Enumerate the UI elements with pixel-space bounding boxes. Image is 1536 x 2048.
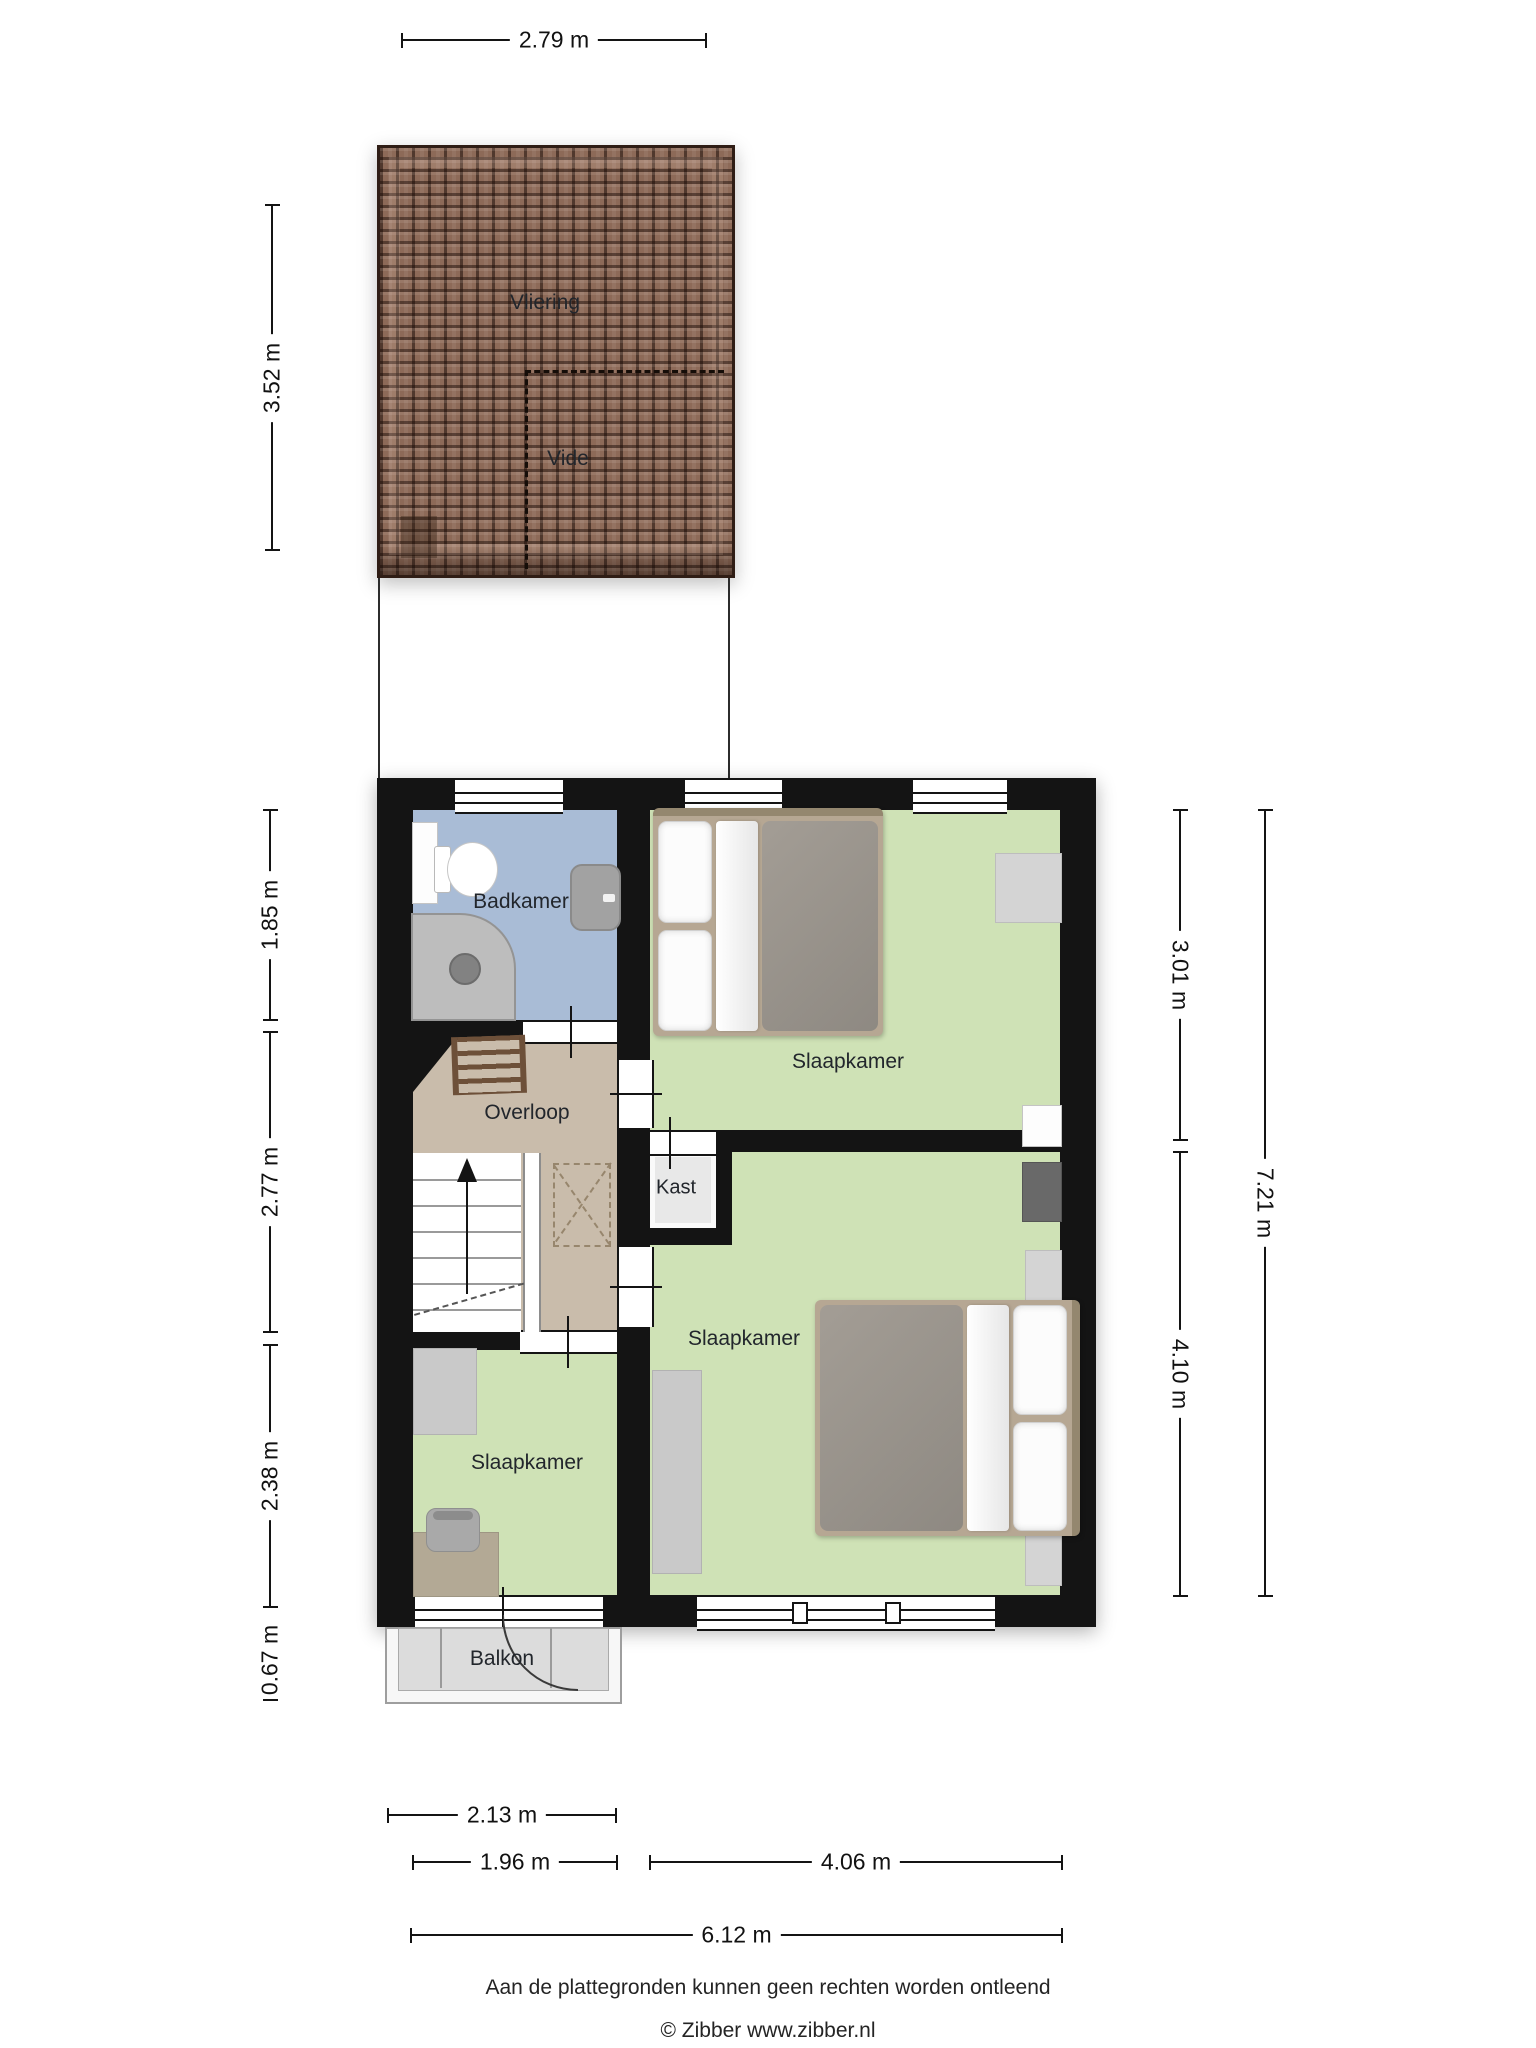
- door-tick: [610, 1093, 662, 1095]
- room-label-balkon: Balkon: [470, 1647, 534, 1671]
- door-tick: [567, 1316, 569, 1368]
- dim-label: 2.13 m: [458, 1802, 546, 1829]
- dim-balkon-width: 2.13 m: [388, 1814, 616, 1816]
- dim-rechts-width: 4.06 m: [650, 1861, 1062, 1863]
- attic-projection-line-right: [728, 578, 730, 778]
- dim-attic-width: 2.79 m: [402, 39, 706, 41]
- bed-top-bedroom: [653, 808, 883, 1036]
- dim-label: 1.96 m: [471, 1849, 559, 1876]
- kast-door-opening: [650, 1130, 716, 1156]
- pillow-icon: [1013, 1422, 1067, 1532]
- sink-icon: [570, 864, 621, 931]
- bed-sheet-fold: [716, 821, 758, 1031]
- stairs-direction-line: [466, 1182, 468, 1294]
- pillow-icon: [1013, 1305, 1067, 1415]
- dim-label: 2.79 m: [510, 27, 598, 54]
- bed-pillows: [1013, 1305, 1067, 1531]
- dim-label: 7.21 m: [1252, 1159, 1279, 1247]
- toilet-bowl-icon: [447, 842, 498, 897]
- pillow-icon: [658, 821, 712, 923]
- stair-railing: [523, 1153, 541, 1332]
- window-mullion: [792, 1602, 808, 1624]
- badkamer-door-opening: [523, 1020, 617, 1044]
- room-label-slaapkamer-top: Slaapkamer: [792, 1050, 904, 1074]
- room-label-kast: Kast: [656, 1177, 696, 1200]
- balcony-divider: [440, 1628, 442, 1688]
- dim-slaapkamer-top-height: 3.01 m: [1179, 810, 1181, 1140]
- dim-label: 4.06 m: [812, 1849, 900, 1876]
- room-label-badkamer: Badkamer: [473, 890, 569, 914]
- dim-label: 3.01 m: [1167, 931, 1194, 1019]
- dim-label: 2.77 m: [257, 1138, 284, 1226]
- dim-slaapkamer-klein-height: 2.38 m: [269, 1345, 271, 1607]
- bed-sheet-fold: [967, 1305, 1009, 1531]
- floorplan-page: Vliering Vide: [0, 0, 1536, 2048]
- bed-duvet: [820, 1305, 963, 1531]
- slaapkamer-groot-window: [697, 1595, 995, 1631]
- attic-ladder-icon: [451, 1035, 527, 1096]
- dim-label: 6.12 m: [692, 1922, 780, 1949]
- shower-drain-icon: [449, 953, 481, 985]
- dim-label: 0.67 m: [257, 1616, 284, 1704]
- kast-wall-bottom: [650, 1228, 732, 1245]
- slaapkamer-top-door-opening: [617, 1060, 654, 1128]
- shower-icon: [411, 913, 516, 1021]
- radiator-unit: [1022, 1162, 1062, 1222]
- footer-copyright-text: © Zibber www.zibber.nl: [0, 2009, 1536, 2048]
- wardrobe-big-bedroom: [652, 1370, 702, 1574]
- attic-projection-line-left: [378, 578, 380, 778]
- slaapkamer-top-window-right: [913, 778, 1007, 814]
- bed-pillows: [658, 821, 712, 1031]
- wardrobe-small-bedroom: [413, 1348, 477, 1435]
- slaapkamer-klein-door-opening: [520, 1330, 617, 1354]
- cabinet-top-bedroom: [1022, 1105, 1062, 1147]
- pillow-icon: [658, 930, 712, 1032]
- bed-duvet: [762, 821, 878, 1031]
- footer-disclaimer-text: Aan de plattegronden kunnen geen rechten…: [0, 1966, 1536, 2009]
- dim-badkamer-height: 1.85 m: [269, 810, 271, 1020]
- dim-links-width: 1.96 m: [413, 1861, 617, 1863]
- dim-label: 2.38 m: [257, 1432, 284, 1520]
- window-mullion: [885, 1602, 901, 1624]
- attic-roof: [377, 145, 735, 578]
- stairs-up-arrow-icon: [457, 1158, 477, 1182]
- dresser-top-bedroom: [995, 853, 1062, 923]
- dim-label: 1.85 m: [257, 871, 284, 959]
- door-tick: [610, 1286, 662, 1288]
- room-label-slaapkamer-groot: Slaapkamer: [688, 1327, 800, 1351]
- dim-overloop-height: 2.77 m: [269, 1032, 271, 1332]
- room-label-vide: Vide: [547, 447, 589, 471]
- dim-label: 3.52 m: [259, 333, 286, 421]
- door-tick: [570, 1006, 572, 1058]
- dim-balkon-height: 0.67 m: [269, 1620, 271, 1700]
- chimney: [401, 516, 437, 558]
- door-tick: [669, 1117, 671, 1169]
- badkamer-window: [455, 778, 563, 814]
- bed-big-bedroom: [815, 1300, 1080, 1536]
- room-label-slaapkamer-klein: Slaapkamer: [471, 1451, 583, 1475]
- dim-label: 4.10 m: [1167, 1330, 1194, 1418]
- dim-totaal-breedte: 6.12 m: [411, 1934, 1062, 1936]
- footer-disclaimer: Aan de plattegronden kunnen geen rechten…: [0, 1966, 1536, 2048]
- dim-totaal-hoogte: 7.21 m: [1264, 810, 1266, 1596]
- dim-slaapkamer-groot-height: 4.10 m: [1179, 1152, 1181, 1596]
- room-label-vliering: Vliering: [510, 291, 580, 315]
- room-label-overloop: Overloop: [484, 1101, 569, 1125]
- desk-chair-icon: [426, 1508, 480, 1552]
- dim-attic-height: 3.52 m: [271, 205, 273, 550]
- slaapkamer-groot-door-opening: [617, 1247, 654, 1327]
